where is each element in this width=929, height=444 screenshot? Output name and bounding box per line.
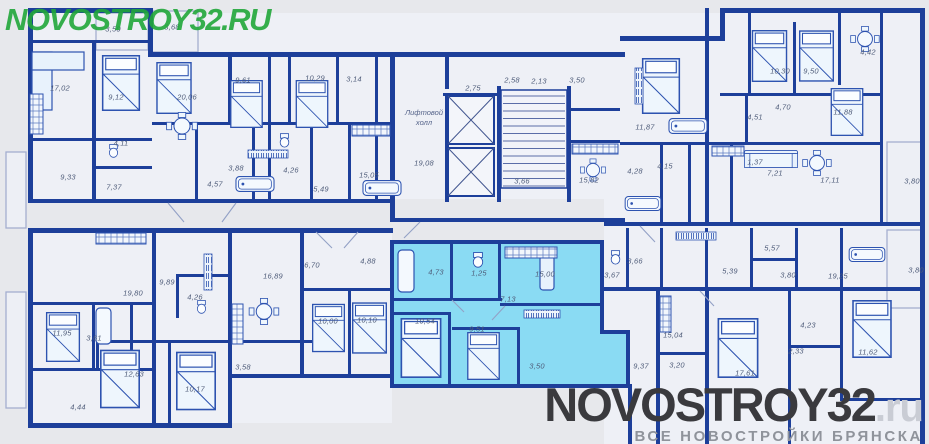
staircase [501,90,567,188]
brand-logo-suffix: .ru [875,386,923,430]
brand-tagline: ВСЕ НОВОСТРОЙКИ БРЯНСКА [544,429,923,444]
loggia [887,230,923,308]
watermark-bottom-right: NOVOSTROY32.ru ВСЕ НОВОСТРОЙКИ БРЯНСКА [544,381,923,444]
balcony [6,292,26,408]
loggia [887,142,923,224]
floor-plan: Лифтовой холл 17,023,509,123,6820,064,11… [0,0,929,444]
watermark-top-left: NOVOSTROY32.RU [5,2,270,38]
balcony [6,152,26,228]
brand-logo-text: NOVOSTROY32 [544,378,875,431]
